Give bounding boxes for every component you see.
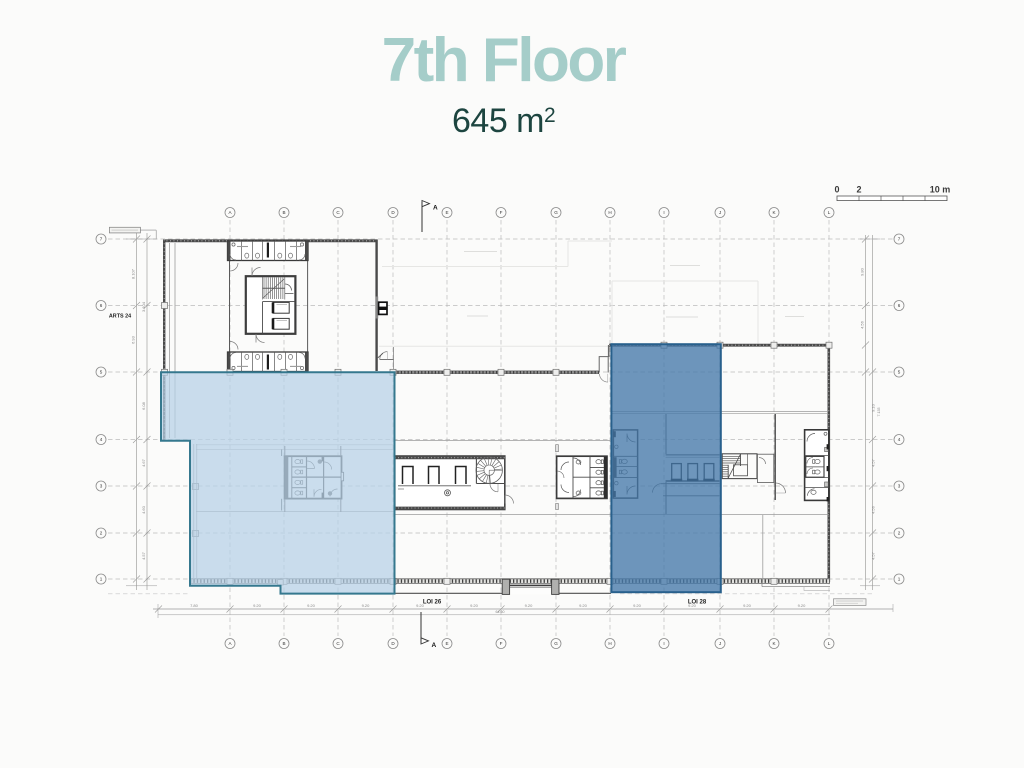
svg-text:4.60: 4.60 [141,505,146,514]
svg-text:9.10: 9.10 [871,403,876,412]
svg-text:H: H [608,210,611,215]
svg-text:LOI 28: LOI 28 [688,600,707,606]
svg-text:4: 4 [898,437,901,442]
svg-text:6: 6 [898,303,901,308]
svg-text:6: 6 [100,303,103,308]
svg-text:6.93: 6.93 [131,335,136,344]
svg-text:L: L [828,641,831,646]
svg-text:1: 1 [100,577,103,582]
svg-text:7.135: 7.135 [877,408,881,417]
svg-text:0: 0 [834,185,839,195]
svg-text:3: 3 [100,484,103,489]
svg-text:4.57: 4.57 [141,551,146,560]
svg-text:F: F [500,641,503,646]
svg-text:7: 7 [100,237,103,242]
svg-text:LOI 26: LOI 26 [423,600,442,606]
svg-text:G: G [554,210,558,215]
svg-text:4.67: 4.67 [141,458,146,467]
svg-text:7: 7 [898,237,901,242]
svg-text:9.20: 9.20 [362,603,371,608]
svg-text:5: 5 [898,370,901,375]
svg-text:5: 5 [100,370,103,375]
svg-text:H: H [608,641,611,646]
svg-text:10 m: 10 m [930,185,951,195]
svg-text:ARTS 24: ARTS 24 [109,314,131,320]
svg-text:8.107: 8.107 [131,268,136,279]
svg-text:9.20: 9.20 [470,603,479,608]
svg-text:J: J [719,641,721,646]
svg-text:I: I [663,210,664,215]
svg-text:E: E [445,210,448,215]
svg-text:4: 4 [100,437,103,442]
svg-text:4.57: 4.57 [871,551,876,560]
svg-text:9.20: 9.20 [307,603,316,608]
svg-text:A: A [433,205,438,212]
svg-text:64.60: 64.60 [496,610,505,614]
svg-text:9.20: 9.20 [253,603,262,608]
svg-text:2: 2 [100,531,103,536]
svg-text:2: 2 [856,185,861,195]
svg-text:B: B [282,210,285,215]
svg-text:4.56: 4.56 [860,320,865,329]
svg-text:4.57: 4.57 [871,458,876,467]
svg-text:645 m2: 645 m2 [452,102,555,140]
svg-text:F: F [500,210,503,215]
svg-text:9.20: 9.20 [579,603,588,608]
svg-text:2: 2 [898,531,901,536]
svg-text:7.80: 7.80 [190,603,199,608]
svg-text:E: E [445,641,448,646]
svg-text:3: 3 [898,484,901,489]
svg-text:A: A [432,642,437,649]
svg-text:3.104: 3.104 [141,301,146,312]
svg-text:7th Floor: 7th Floor [382,26,627,95]
svg-text:B: B [282,641,285,646]
svg-text:6.08: 6.08 [141,401,146,410]
svg-text:I: I [663,641,664,646]
svg-text:9.20: 9.20 [798,603,807,608]
svg-text:9.20: 9.20 [525,603,534,608]
svg-text:1: 1 [898,577,901,582]
svg-text:9.20: 9.20 [743,603,752,608]
svg-text:L: L [828,210,831,215]
svg-text:J: J [719,210,721,215]
svg-text:4.56: 4.56 [871,505,876,514]
svg-text:9.20: 9.20 [633,603,642,608]
svg-text:9.80: 9.80 [860,267,865,276]
svg-text:G: G [554,641,558,646]
